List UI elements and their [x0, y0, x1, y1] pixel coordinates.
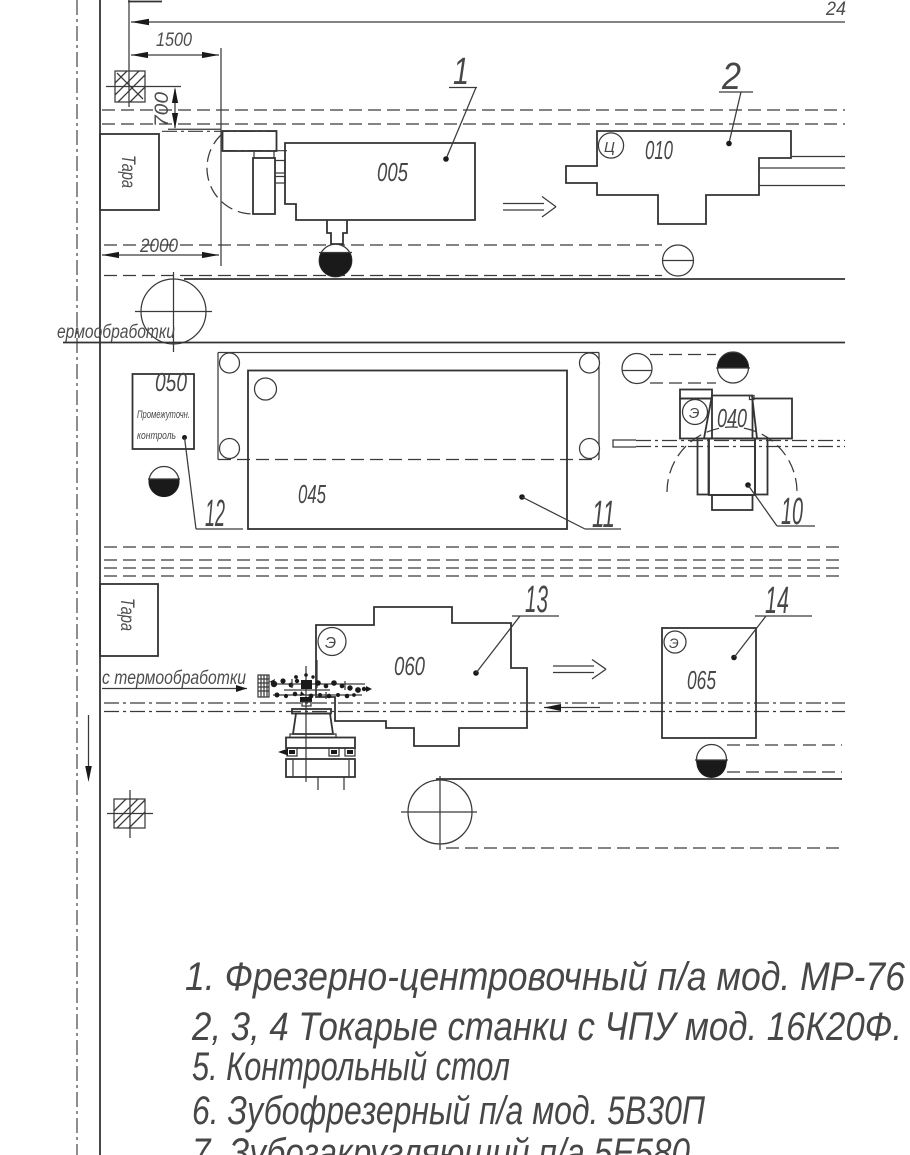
svg-text:1: 1	[453, 51, 469, 93]
svg-text:1. Фрезерно-центровочный п/а м: 1. Фрезерно-центровочный п/а мод. МР-76	[185, 955, 906, 999]
svg-text:Э: Э	[669, 635, 679, 651]
svg-text:контроль: контроль	[137, 430, 176, 442]
svg-text:Тара: Тара	[116, 598, 137, 631]
svg-text:060: 060	[394, 651, 425, 681]
svg-text:7. Зубозакругляющий п/а 5Е580: 7. Зубозакругляющий п/а 5Е580	[192, 1131, 690, 1155]
svg-text:ермообработки: ермообработки	[57, 322, 175, 343]
svg-text:2, 3, 4 Токарые станки с ЧПУ м: 2, 3, 4 Токарые станки с ЧПУ мод. 16К20Ф…	[191, 1005, 902, 1049]
svg-text:045: 045	[298, 479, 326, 509]
svg-text:005: 005	[377, 157, 408, 187]
svg-text:Э: Э	[689, 405, 699, 422]
svg-text:6. Зубофрезерный п/а мод. 5В30: 6. Зубофрезерный п/а мод. 5В30П	[192, 1089, 706, 1133]
svg-text:Ц: Ц	[604, 139, 615, 156]
svg-text:13: 13	[525, 579, 548, 621]
svg-text:11: 11	[592, 494, 615, 536]
svg-text:065: 065	[687, 665, 716, 695]
svg-text:Тара: Тара	[117, 155, 138, 188]
svg-text:040: 040	[717, 403, 747, 433]
svg-text:5. Контрольный стол: 5. Контрольный стол	[192, 1045, 510, 1089]
svg-text:Э: Э	[325, 635, 336, 652]
svg-text:700: 700	[152, 92, 173, 127]
svg-text:010: 010	[645, 135, 673, 165]
svg-text:1500: 1500	[156, 30, 192, 51]
svg-text:Промежуточн.: Промежуточн.	[137, 409, 190, 421]
svg-text:10: 10	[781, 491, 803, 533]
svg-text:14: 14	[765, 580, 789, 622]
svg-text:с термообработки: с термообработки	[102, 668, 246, 689]
svg-text:12: 12	[205, 493, 225, 535]
svg-text:2000: 2000	[139, 236, 178, 257]
svg-text:24: 24	[825, 0, 846, 20]
svg-text:050: 050	[155, 367, 187, 397]
